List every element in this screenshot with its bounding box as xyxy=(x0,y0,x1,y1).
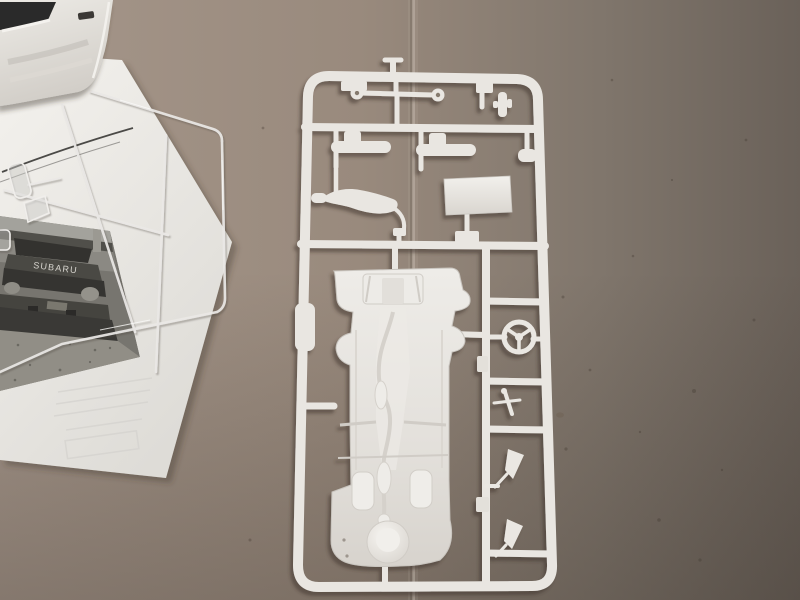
muffler-elbow xyxy=(393,228,406,236)
cylinder-part-lug-left xyxy=(493,101,498,108)
sprue-rung-2 xyxy=(486,381,546,382)
clear-lens-part-3 xyxy=(0,230,10,250)
engine-center xyxy=(382,278,404,304)
photo-post xyxy=(93,228,101,252)
scene-svg: SUBARU xyxy=(0,0,800,600)
sprue-rung-3 xyxy=(486,429,548,430)
capsule-part xyxy=(518,149,537,162)
left-rail-tab-part xyxy=(295,303,315,351)
car-headlight-right xyxy=(81,287,99,301)
sprue-rung-1 xyxy=(486,301,544,302)
inner-rail-tab-2 xyxy=(476,497,489,512)
flat-tab-left xyxy=(341,81,367,91)
inner-rail-tab-1 xyxy=(477,356,488,372)
shock-absorber-right xyxy=(416,144,476,156)
muffler-tip xyxy=(311,193,327,203)
axle-eyelet-left-hole xyxy=(355,91,359,95)
rivet-dot-2 xyxy=(345,554,348,557)
sprue-bar-middle xyxy=(301,244,545,246)
shock-absorber-left xyxy=(331,141,391,153)
flat-panel-part xyxy=(444,176,512,215)
axle-rod xyxy=(362,93,433,95)
flat-tab-right xyxy=(476,82,493,93)
rivet-dot-1 xyxy=(342,538,345,541)
rear-pod-left xyxy=(352,472,374,510)
sprue-bar-upper xyxy=(305,127,539,129)
axle-eyelet-right-hole xyxy=(436,93,440,97)
cylinder-part xyxy=(498,92,507,117)
muffler-detail-2 xyxy=(377,462,391,494)
panel-elbow xyxy=(455,231,479,243)
spare-wheel-dome-top xyxy=(376,528,400,552)
cylinder-part-lug-right xyxy=(507,99,512,108)
muffler-detail-1 xyxy=(375,381,387,409)
sprue-rung-4 xyxy=(486,553,550,554)
car-headlight-left xyxy=(4,282,20,294)
photo-canvas: SUBARU xyxy=(0,0,800,600)
shifter-knob xyxy=(501,388,507,394)
rear-pod-right xyxy=(410,470,432,508)
